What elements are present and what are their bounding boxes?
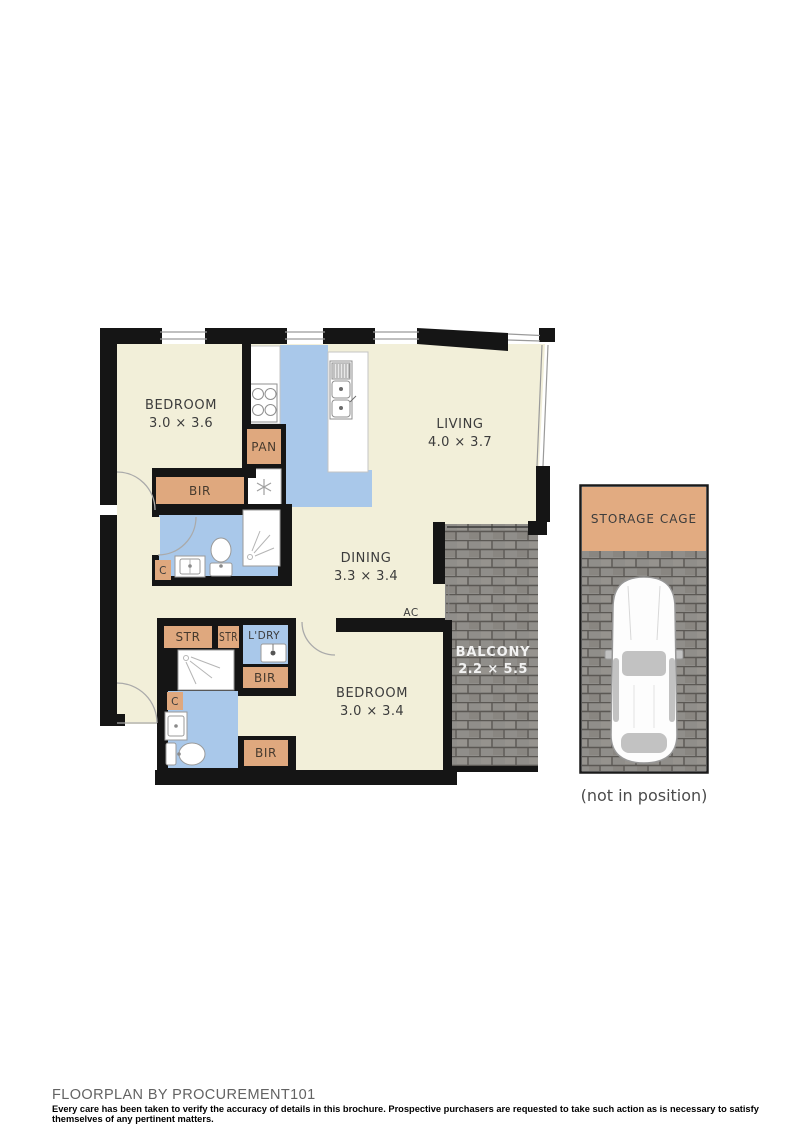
pantry-label: PAN — [251, 440, 276, 454]
bir1-label: BIR — [189, 484, 211, 498]
bedroom2-label: BEDROOM — [336, 686, 408, 701]
kitchen-wall — [242, 344, 251, 428]
sink2-icon — [165, 712, 187, 740]
storage-cage — [581, 486, 708, 773]
bir2-label: BIR — [254, 671, 276, 685]
balcony-wall-bottom — [450, 766, 538, 772]
wall-top-c — [323, 328, 375, 344]
wall-left-lower — [100, 515, 117, 722]
bathroom1-door-gap — [152, 517, 160, 555]
bedroom1-dims: 3.0 × 3.6 — [149, 416, 213, 431]
toilet2-icon — [166, 743, 205, 765]
balcony-dims: 2.2 × 5.5 — [458, 662, 528, 677]
wall-corner-ne — [539, 328, 555, 342]
laundry-label: L'DRY — [248, 630, 280, 642]
floorplan-page: BEDROOM 3.0 × 3.6 LIVING 4.0 × 3.7 DININ… — [0, 0, 800, 1127]
window-2 — [285, 332, 325, 339]
laundry-sink-icon — [261, 644, 286, 662]
kitchen-sink-icon — [330, 361, 356, 419]
footer-title: FLOORPLAN BY PROCUREMENT101 — [52, 1087, 316, 1103]
wall-top-b — [205, 328, 287, 344]
toilet1-icon — [210, 538, 232, 576]
living-dims: 4.0 × 3.7 — [428, 435, 492, 450]
balcony-label: BALCONY — [456, 645, 531, 660]
kitchen — [242, 344, 372, 508]
kitchen-floor-band — [280, 470, 372, 507]
footer-disclaimer: Every care has been taken to verify the … — [52, 1104, 800, 1124]
lower-block — [157, 618, 457, 785]
sink1-icon — [175, 556, 205, 577]
wall-right — [536, 466, 550, 522]
wall-bottom — [155, 770, 457, 785]
bedroom2-dims: 3.0 × 3.4 — [340, 704, 404, 719]
balcony-corner — [528, 521, 547, 535]
str1-label: STR — [175, 630, 200, 644]
bedroom1-label: BEDROOM — [145, 398, 217, 413]
cupboard2-label: C — [171, 696, 179, 708]
str2-label: STR — [219, 630, 238, 644]
cupboard1-label: C — [159, 565, 167, 577]
storage-cage-label: STORAGE CAGE — [591, 512, 697, 526]
window-1 — [160, 332, 207, 339]
bedroom2-floor — [296, 632, 443, 773]
wall-entry-cap — [100, 714, 125, 726]
dining-label: DINING — [341, 551, 392, 566]
floorplan-drawing: BEDROOM 3.0 × 3.6 LIVING 4.0 × 3.7 DININ… — [0, 0, 800, 1127]
balcony-wall-left — [433, 522, 445, 584]
robe-vestibule — [238, 696, 296, 736]
car-icon — [605, 577, 683, 763]
wall-left-upper — [100, 328, 117, 505]
window-3 — [373, 332, 419, 339]
bir3-label: BIR — [255, 746, 277, 760]
floor-hallway — [117, 620, 157, 724]
ac-label: AC — [403, 607, 418, 619]
living-label: LIVING — [436, 417, 483, 432]
dining-dims: 3.3 × 3.4 — [334, 569, 398, 584]
window-4 — [508, 334, 540, 341]
bathroom1 — [152, 504, 292, 586]
shower1 — [243, 510, 280, 566]
not-in-position-note: (not in position) — [581, 786, 708, 805]
